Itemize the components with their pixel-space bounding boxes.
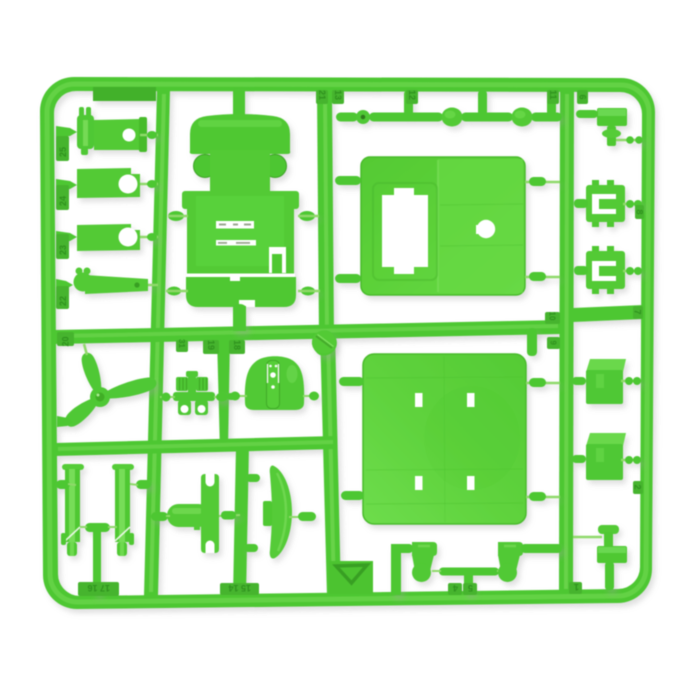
svg-text:9: 9 <box>549 341 558 346</box>
svg-text:2: 2 <box>633 485 643 490</box>
svg-text:6: 6 <box>578 95 588 100</box>
svg-text:8: 8 <box>635 210 645 215</box>
svg-text:12: 12 <box>407 90 417 100</box>
svg-text:4: 4 <box>453 583 458 593</box>
svg-text:7: 7 <box>633 310 643 315</box>
svg-text:1: 1 <box>574 582 579 592</box>
svg-text:20: 20 <box>61 336 71 346</box>
svg-text:31: 31 <box>177 339 186 348</box>
svg-text:15 14: 15 14 <box>228 583 251 593</box>
svg-text:5: 5 <box>468 583 473 593</box>
svg-text:21: 21 <box>317 90 327 100</box>
svg-text:10: 10 <box>548 312 557 321</box>
svg-text:22: 22 <box>58 296 68 306</box>
svg-text:24: 24 <box>58 196 68 206</box>
svg-text:11: 11 <box>548 90 558 100</box>
svg-text:13: 13 <box>333 90 343 100</box>
svg-text:19: 19 <box>206 340 216 350</box>
svg-text:25: 25 <box>58 147 68 157</box>
svg-text:18: 18 <box>232 340 242 350</box>
svg-text:23: 23 <box>58 245 68 255</box>
svg-text:17 16: 17 16 <box>87 583 110 593</box>
